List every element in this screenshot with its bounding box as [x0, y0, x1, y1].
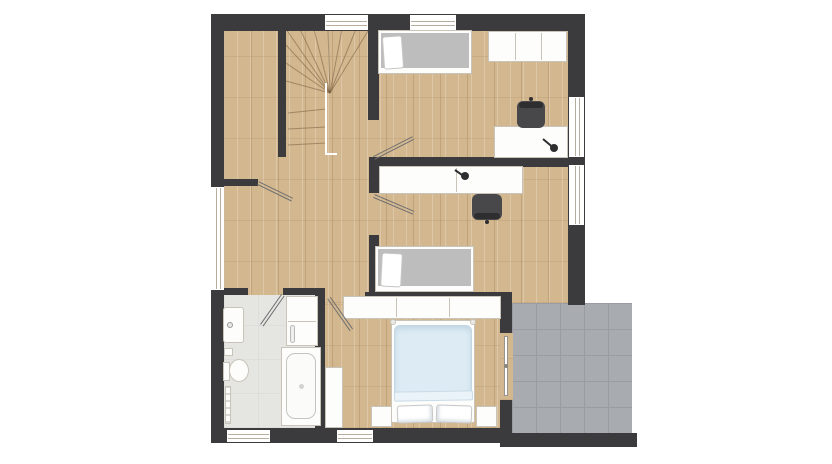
wall-closet-right [278, 29, 286, 157]
wall-top [211, 14, 585, 31]
wall-terrace-door-lower [500, 400, 512, 428]
desk-bedroom2 [379, 166, 523, 194]
tall-cabinet [325, 367, 343, 428]
bathtub-drain-icon [299, 384, 304, 389]
pillow-master-right [436, 404, 473, 423]
stair-railing-end [325, 153, 337, 155]
wall-bathroom-top-right [283, 288, 325, 295]
single-bed-1 [378, 30, 472, 74]
window-right-2 [569, 165, 584, 225]
window-left-1 [211, 187, 224, 290]
single-bed-2 [375, 246, 474, 292]
bedpost-right [470, 319, 476, 325]
wall-bedroom2-left-upper [369, 167, 379, 193]
soap-shelf [224, 348, 233, 356]
pillow-1 [382, 35, 404, 69]
bedpost-left [390, 319, 396, 325]
duvet-fold [394, 390, 473, 401]
faucet-icon [227, 322, 233, 328]
office-chair-1 [517, 101, 545, 128]
door-handle-icon [504, 364, 508, 368]
pillow-2 [380, 252, 403, 287]
wardrobe-bedroom1 [488, 31, 567, 62]
terrace-floor [512, 303, 632, 433]
nightstand-right [476, 406, 497, 427]
double-bed [391, 320, 475, 423]
window-bottom-2 [337, 430, 373, 442]
window-top-2 [410, 15, 456, 30]
bath-cabinet [286, 296, 318, 346]
toilet-bowl [229, 359, 249, 382]
terrace-glass-door [504, 336, 508, 396]
window-bottom-1 [227, 430, 270, 442]
wall-terrace-bottom [500, 433, 637, 447]
towel-rail-icon [290, 325, 295, 343]
window-right-1 [569, 97, 584, 157]
towel-radiator [225, 386, 231, 424]
wall-closet-bottom [224, 179, 258, 186]
desk-bedroom1 [494, 126, 568, 158]
wall-right [568, 14, 585, 305]
wardrobe-master [343, 296, 501, 319]
bathtub [281, 347, 321, 426]
window-top-1 [325, 15, 368, 30]
floor-plan [0, 0, 832, 464]
wall-terrace-door-upper [500, 292, 512, 333]
duvet [394, 325, 472, 397]
winder-stairs [286, 29, 368, 157]
stair-railing [325, 83, 327, 155]
sink [223, 307, 244, 343]
nightstand-left [371, 406, 392, 427]
office-chair-2 [472, 194, 502, 220]
pillow-master-left [397, 404, 434, 423]
